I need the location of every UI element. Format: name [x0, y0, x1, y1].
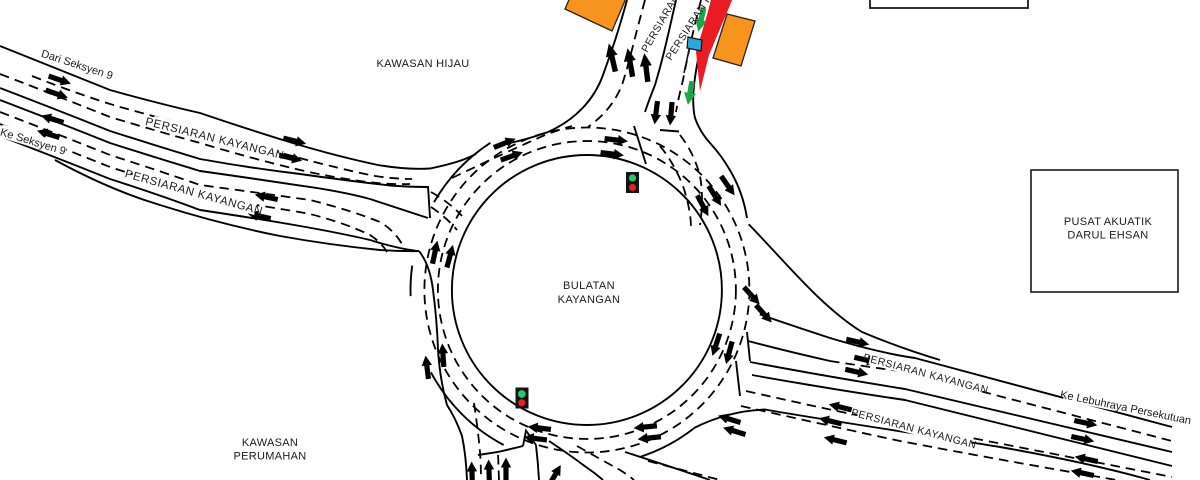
svg-text:KAYANGAN: KAYANGAN: [558, 294, 621, 306]
svg-text:KAWASAN: KAWASAN: [242, 437, 298, 449]
svg-text:PUSAT AKUATIK: PUSAT AKUATIK: [1064, 216, 1153, 228]
svg-text:BULATAN: BULATAN: [563, 280, 615, 292]
svg-text:KAWASAN HIJAU: KAWASAN HIJAU: [377, 58, 470, 70]
svg-text:PERUMAHAN: PERUMAHAN: [234, 451, 307, 463]
svg-text:DARUL EHSAN: DARUL EHSAN: [1067, 230, 1148, 242]
